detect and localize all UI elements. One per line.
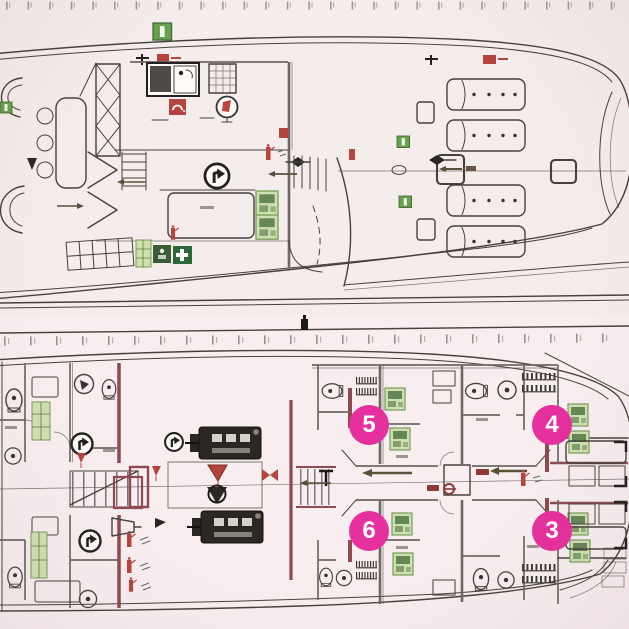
- deck-plan-sheet: 5 4 6 3: [0, 0, 629, 629]
- room-label: [5, 426, 17, 429]
- alarm-circle-icon: [205, 164, 229, 188]
- room-label: [200, 206, 214, 209]
- alarm-circle-icon: [165, 433, 183, 451]
- fire-equipment-icon: [349, 149, 355, 160]
- exit-sign-icon: [0, 102, 12, 113]
- safety-placard-icon: [569, 431, 589, 453]
- safety-placard-icon: [570, 540, 590, 562]
- lifejacket-sign-icon: [153, 245, 171, 263]
- route-dash: [476, 469, 489, 475]
- room-label: [103, 449, 115, 452]
- marker-5[interactable]: 5: [349, 405, 389, 445]
- route-dash: [427, 485, 439, 491]
- safety-placard-icon: [392, 513, 412, 535]
- safety-placard-icon: [385, 388, 405, 410]
- safety-placard-icon: [256, 191, 278, 215]
- assembly-sign-icon: [153, 23, 172, 40]
- cabin-label: [396, 455, 408, 458]
- safety-sign-icon: [397, 136, 410, 148]
- fire-call-point-icon: [279, 128, 288, 138]
- safety-placard-icon: [393, 553, 413, 575]
- ruler-datum-icon: [301, 319, 308, 330]
- marker-6[interactable]: 6: [349, 511, 389, 551]
- stove-icon: [150, 66, 171, 92]
- marker-3[interactable]: 3: [532, 511, 572, 551]
- alarm-circle-icon: [72, 434, 93, 455]
- marker-4[interactable]: 4: [532, 405, 572, 445]
- route-dash: [466, 166, 476, 171]
- cabin-label: [396, 546, 408, 549]
- fire-blanket-icon: [169, 99, 186, 115]
- safety-sign-icon: [399, 196, 412, 208]
- safety-placard-icon: [390, 428, 410, 450]
- alarm-circle-icon: [80, 531, 101, 552]
- cabin-label: [476, 418, 488, 421]
- safety-placard-icon: [256, 215, 278, 239]
